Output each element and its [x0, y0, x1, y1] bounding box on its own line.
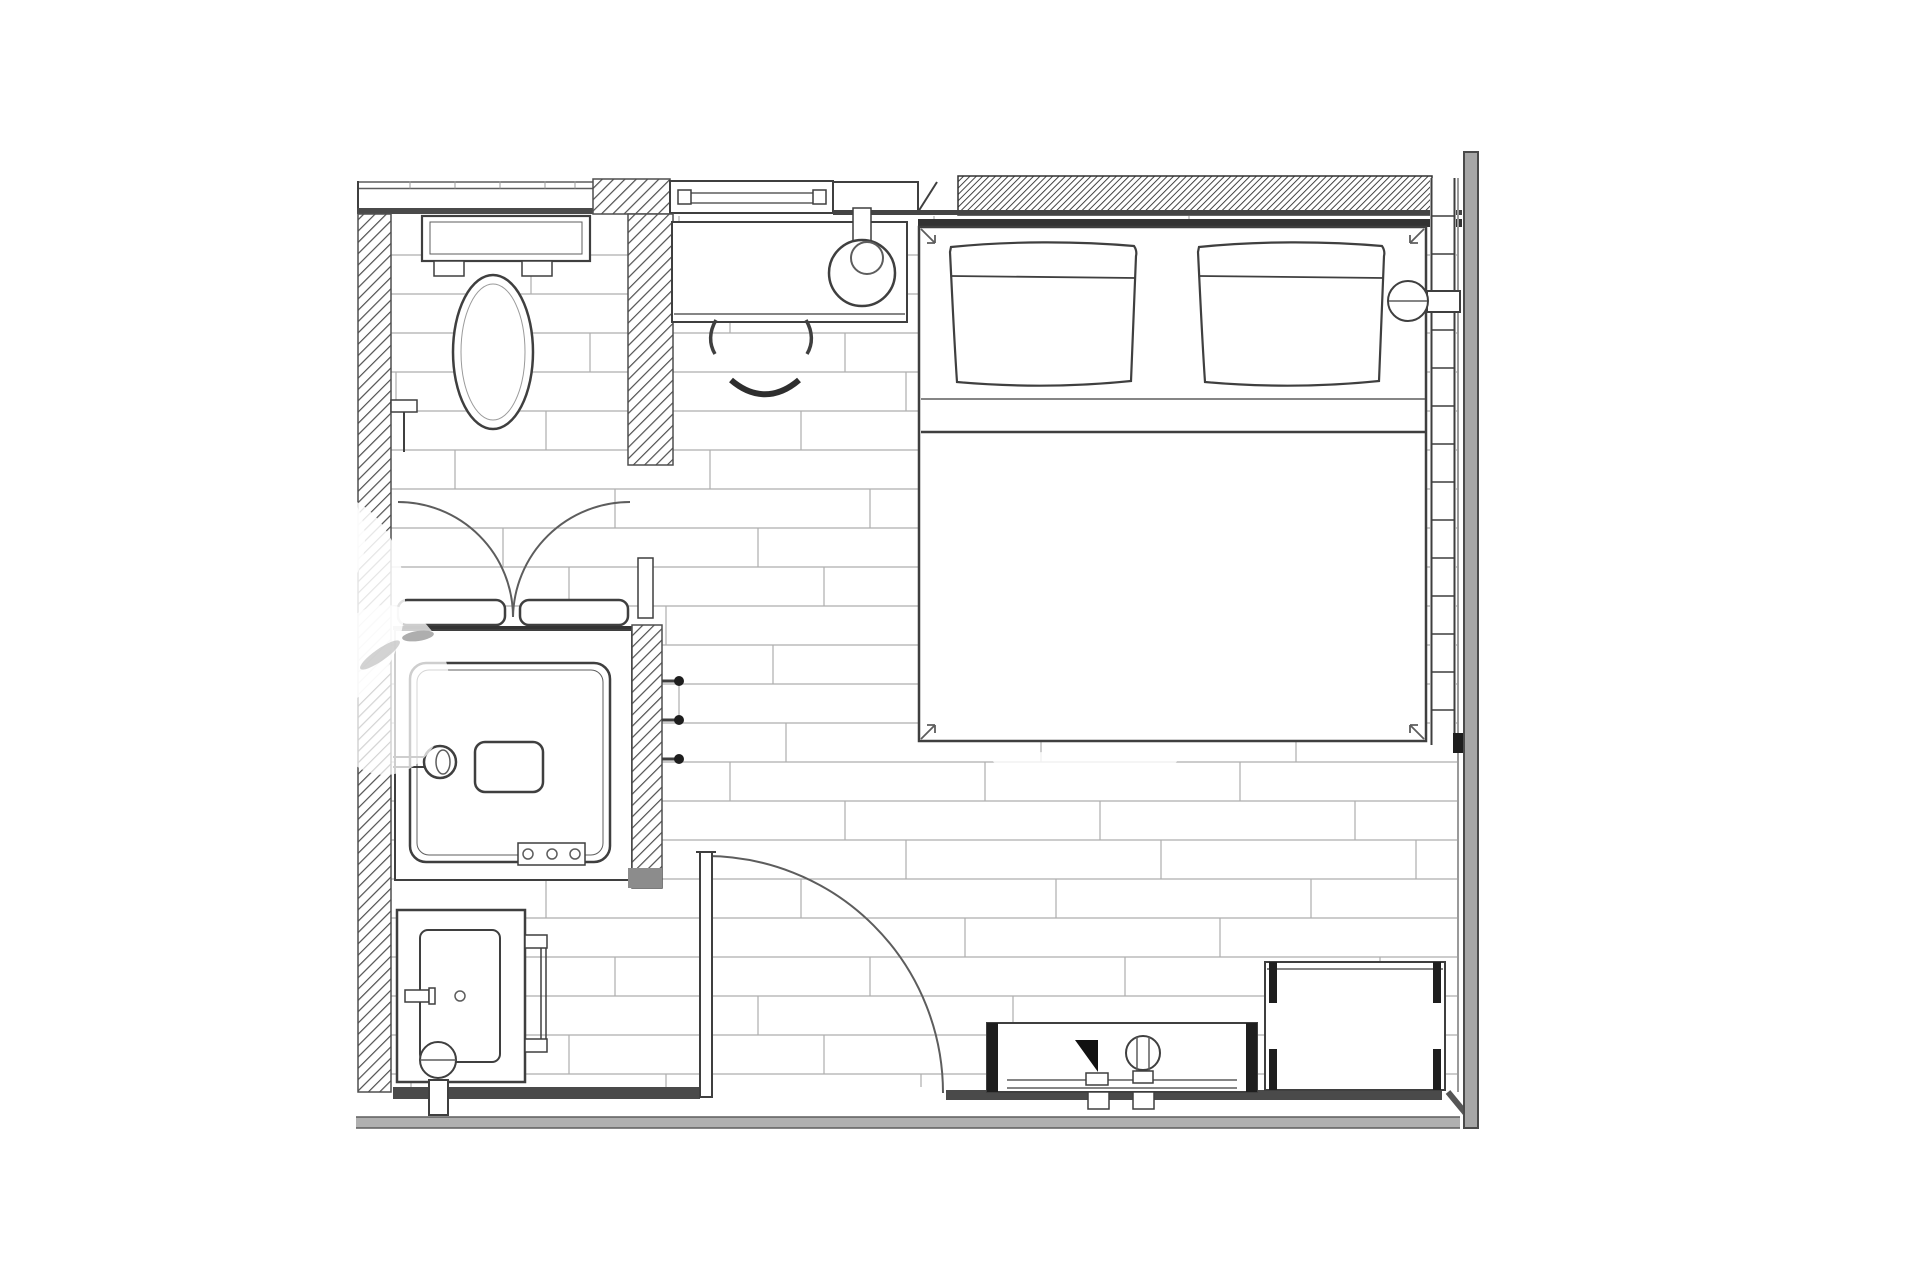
console-end-cap — [987, 1023, 998, 1092]
toilet-paper-holder — [391, 400, 417, 452]
pillow-left — [950, 242, 1136, 385]
chair-backrest — [731, 380, 799, 394]
robe-hook-icon — [674, 715, 684, 725]
window-strip-end-cap — [1453, 733, 1463, 753]
faucet-stem — [429, 1080, 448, 1115]
floor-plan-drawing — [0, 0, 1920, 1279]
bathroom-partition-pier — [628, 214, 673, 465]
decor-vase-base — [1133, 1071, 1153, 1083]
console-end-cap — [1246, 1023, 1257, 1092]
glass-partition — [628, 558, 684, 888]
bench-corner-bracket — [1269, 962, 1277, 1003]
watermark-streak — [993, 751, 1177, 771]
robe-hook-icon — [674, 754, 684, 764]
partition-end-cap — [628, 868, 662, 888]
bench-corner-bracket — [1433, 962, 1441, 1003]
bathroom-wall-face-line — [357, 208, 593, 214]
toilet-hinge — [522, 261, 552, 276]
desk-window — [670, 181, 833, 213]
pillow-right — [1198, 242, 1384, 385]
watermark-blob — [320, 605, 450, 775]
luggage-bench — [1265, 962, 1445, 1090]
wall-shelf-block — [833, 182, 918, 212]
decor-triangle-base — [1086, 1073, 1108, 1085]
entry-door — [696, 852, 943, 1097]
chair-armrest — [806, 320, 811, 354]
soap-dish — [405, 990, 429, 1002]
desk-window-frame — [670, 181, 833, 213]
vanity — [397, 910, 547, 1115]
console-outline — [987, 1023, 1257, 1092]
glass-return-panel — [638, 558, 653, 618]
top-wall-hatched-band — [958, 176, 1432, 215]
towel-bar-bracket — [525, 935, 547, 948]
sconce-mount — [1427, 291, 1460, 312]
soap-dish-cap — [429, 988, 435, 1004]
headboard-wall-line-outer — [833, 210, 1462, 215]
desk-chair — [711, 320, 812, 394]
toilet-bowl — [453, 275, 533, 429]
bench-outline — [1265, 962, 1445, 1090]
watermark-blob — [255, 475, 365, 605]
toilet — [422, 216, 590, 429]
bench-corner-bracket — [1269, 1049, 1277, 1090]
wall-miter-line — [918, 182, 937, 212]
robe-hook-icon — [674, 676, 684, 686]
pillow-outline — [950, 242, 1136, 385]
chair-armrest — [711, 320, 716, 354]
pillow-outline — [1198, 242, 1384, 385]
console-foot — [1088, 1092, 1109, 1109]
window-strip-body — [1430, 178, 1456, 745]
tp-holder-bracket — [391, 400, 417, 412]
towel-bar-bracket — [525, 1039, 547, 1052]
toilet-hinge — [434, 261, 464, 276]
shower-door-leaf — [520, 600, 628, 625]
shower-control-panel — [518, 843, 585, 865]
shower-partition-wall — [632, 625, 662, 888]
door-leaf — [700, 852, 712, 1097]
console-foot — [1133, 1092, 1154, 1109]
floor-plan-canvas — [0, 0, 1920, 1279]
bench-corner-bracket — [1433, 1049, 1441, 1090]
decor-vase-icon — [1126, 1036, 1160, 1070]
shower-niche — [475, 742, 543, 792]
double-bed — [919, 227, 1426, 741]
window-tab-icon — [678, 190, 691, 204]
exterior-edge-band — [356, 1117, 1460, 1128]
robe-hooks — [662, 676, 684, 764]
wall-pier-top — [593, 179, 670, 214]
right-wall — [1464, 152, 1478, 1128]
window-tab-icon — [813, 190, 826, 204]
